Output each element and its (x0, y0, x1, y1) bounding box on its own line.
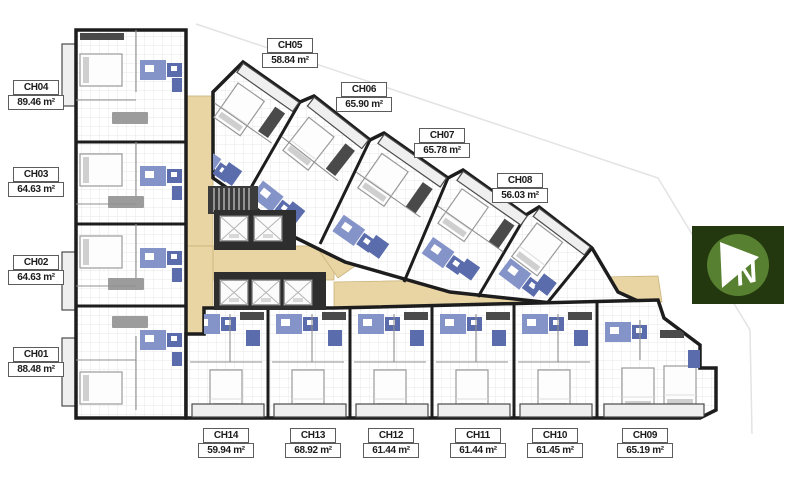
unit-id: CH01 (13, 347, 59, 362)
unit-area: 65.19 m² (617, 443, 673, 458)
unit-label-ch12: CH12 61.44 m² (363, 428, 419, 458)
unit-label-ch07: CH07 65.78 m² (414, 128, 470, 158)
unit-area: 61.44 m² (450, 443, 506, 458)
unit-area: 88.48 m² (8, 362, 64, 377)
unit-area: 64.63 m² (8, 182, 64, 197)
unit-area: 89.46 m² (8, 95, 64, 110)
unit-label-ch01: CH01 88.48 m² (8, 347, 64, 377)
unit-label-ch05: CH05 58.84 m² (262, 38, 318, 68)
unit-id: CH03 (13, 167, 59, 182)
unit-area: 65.90 m² (336, 97, 392, 112)
balcony (62, 252, 76, 310)
unit-label-ch10: CH10 61.45 m² (527, 428, 583, 458)
unit-label-ch02: CH02 64.63 m² (8, 255, 64, 285)
balcony (62, 338, 76, 406)
unit-id: CH11 (455, 428, 501, 443)
unit-area: 61.44 m² (363, 443, 419, 458)
unit-id: CH10 (532, 428, 578, 443)
floor-plan (0, 0, 794, 484)
unit-label-ch06: CH06 65.90 m² (336, 82, 392, 112)
unit-id: CH07 (419, 128, 465, 143)
unit-id: CH05 (267, 38, 313, 53)
left-wing (62, 30, 186, 418)
north-arrow-icon: N (692, 226, 784, 304)
unit-area: 56.03 m² (492, 188, 548, 203)
unit-id: CH14 (203, 428, 249, 443)
floorplan-canvas: CH04 89.46 m² CH03 64.63 m² CH02 64.63 m… (0, 0, 794, 484)
unit-label-ch14: CH14 59.94 m² (198, 428, 254, 458)
balcony (62, 44, 76, 106)
unit-id: CH13 (290, 428, 336, 443)
unit-label-ch13: CH13 68.92 m² (285, 428, 341, 458)
unit-label-ch03: CH03 64.63 m² (8, 167, 64, 197)
north-compass: N (692, 226, 784, 304)
unit-id: CH09 (622, 428, 668, 443)
unit-area: 64.63 m² (8, 270, 64, 285)
unit-label-ch08: CH08 56.03 m² (492, 173, 548, 203)
unit-area: 61.45 m² (527, 443, 583, 458)
unit-id: CH02 (13, 255, 59, 270)
unit-id: CH12 (368, 428, 414, 443)
unit-label-ch11: CH11 61.44 m² (450, 428, 506, 458)
unit-area: 58.84 m² (262, 53, 318, 68)
unit-id: CH06 (341, 82, 387, 97)
unit-area: 68.92 m² (285, 443, 341, 458)
unit-label-ch04: CH04 89.46 m² (8, 80, 64, 110)
unit-id: CH08 (497, 173, 543, 188)
unit-area: 65.78 m² (414, 143, 470, 158)
unit-id: CH04 (13, 80, 59, 95)
bottom-wing (186, 300, 716, 418)
unit-area: 59.94 m² (198, 443, 254, 458)
unit-label-ch09: CH09 65.19 m² (617, 428, 673, 458)
staircase (208, 186, 258, 214)
